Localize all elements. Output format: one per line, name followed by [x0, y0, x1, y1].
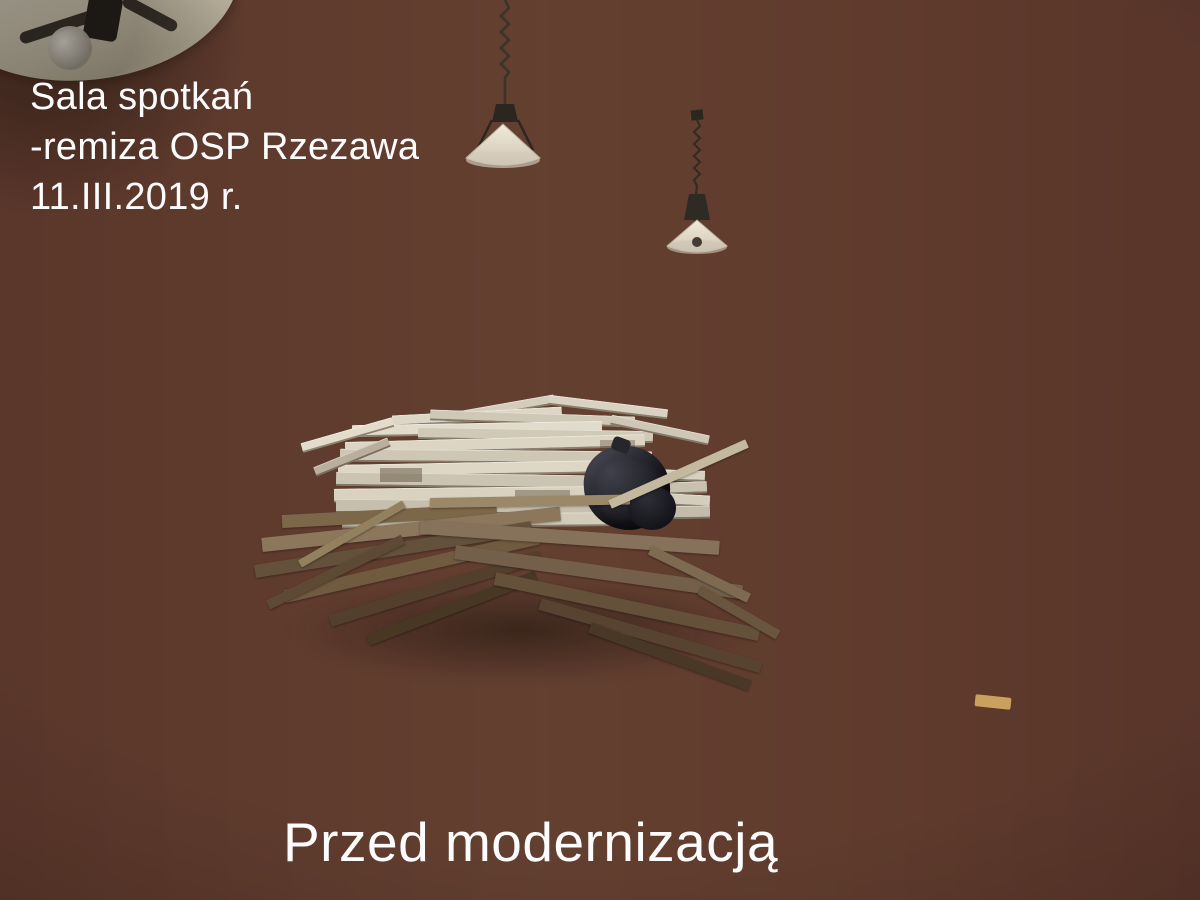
photo-title-overlay: Sala spotkań -remiza OSP Rzezawa 11.III.… — [30, 72, 419, 222]
photo-meeting-hall: Sala spotkań -remiza OSP Rzezawa 11.III.… — [0, 0, 1200, 900]
title-line-3: 11.III.2019 r. — [30, 172, 419, 222]
title-line-2: -remiza OSP Rzezawa — [30, 122, 419, 172]
photo-caption-overlay: Przed modernizacją — [283, 810, 778, 874]
title-line-1: Sala spotkań — [30, 72, 419, 122]
